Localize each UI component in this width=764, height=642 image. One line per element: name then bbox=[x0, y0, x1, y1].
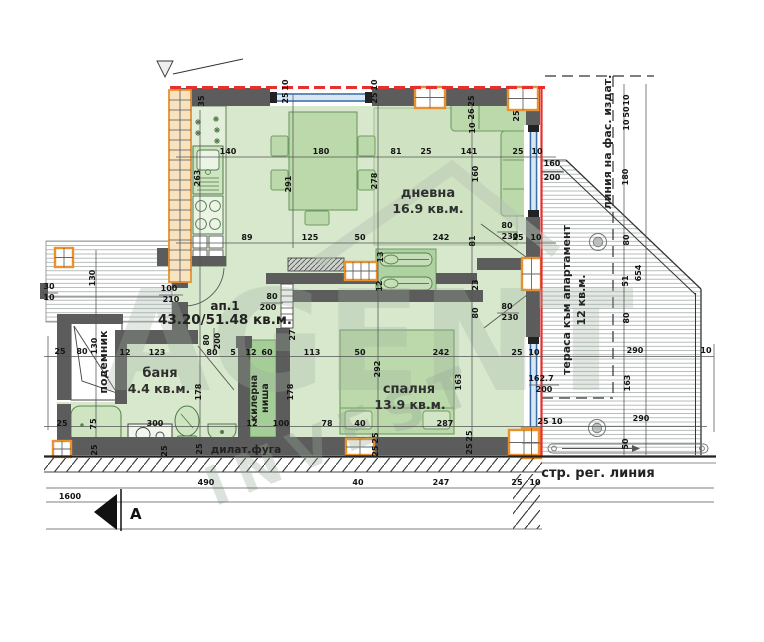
dimension-label: 10 bbox=[622, 94, 631, 106]
dimension-label: 25 bbox=[195, 443, 204, 455]
dimension-label: 287 bbox=[437, 419, 454, 428]
dimension-label: 25 bbox=[465, 430, 474, 442]
dimension-label: 10 bbox=[468, 122, 477, 134]
dimension-label: 10 bbox=[43, 293, 55, 302]
dimension-label: 81 bbox=[390, 147, 402, 156]
terrace-label: тераса към апартамент bbox=[560, 224, 573, 375]
dimension-label: 80 bbox=[622, 312, 631, 324]
dimension-label: 160 bbox=[544, 159, 561, 168]
dimension-label: 40 bbox=[352, 478, 364, 487]
dimension-label: 10 bbox=[370, 79, 379, 91]
dimension-label: 100 bbox=[273, 419, 290, 428]
dimension-label: 13 bbox=[376, 251, 385, 262]
apartment-id: ап.1 bbox=[210, 299, 239, 313]
dimension-label: 25 bbox=[420, 147, 432, 156]
dimension-label: 178 bbox=[286, 383, 295, 400]
dimension-label: 178 bbox=[194, 383, 203, 400]
dimension-label: 25 bbox=[281, 92, 290, 104]
dimension-label: 60 bbox=[261, 348, 273, 357]
balcony-door-living bbox=[524, 125, 542, 217]
dimension-label: 278 bbox=[370, 172, 379, 189]
dimension-label: 25 bbox=[511, 348, 523, 357]
apartment-area: 43.20/51.48 кв.м. bbox=[158, 312, 292, 328]
dimension-label: 25 bbox=[465, 443, 474, 455]
dimension-label: 40 bbox=[354, 419, 366, 428]
dimension-label: 25 bbox=[512, 110, 521, 122]
dimension-label: 10 bbox=[551, 417, 563, 426]
regulation-line-label: стр. рег. линия bbox=[541, 466, 654, 481]
dimension-label: 10 bbox=[530, 233, 542, 242]
dimension-label: 25 bbox=[370, 92, 379, 104]
dimension-label: 242 bbox=[433, 348, 450, 357]
dimension-label: 25 bbox=[54, 347, 66, 356]
dilatation-joint-label: дилат.фуга bbox=[211, 444, 282, 456]
dimension-label: 123 bbox=[149, 348, 166, 357]
section-marker: А bbox=[94, 489, 142, 531]
living-room-area: 16.9 кв.м. bbox=[392, 201, 463, 216]
dimension-label: 12 bbox=[245, 348, 256, 357]
dimension-label: 180 bbox=[621, 168, 630, 185]
dimension-label: 263 bbox=[193, 170, 202, 187]
dimension-label: 291 bbox=[284, 175, 293, 192]
dimension-label: 25 bbox=[537, 417, 549, 426]
dimension-label: 10 bbox=[529, 478, 541, 487]
bedroom-label: спалня bbox=[383, 382, 435, 397]
dimension-label: 26 bbox=[467, 108, 476, 120]
dimension-label: 25 bbox=[512, 147, 524, 156]
dimension-label: 81 bbox=[468, 235, 477, 247]
dimension-label: 200 bbox=[536, 385, 553, 394]
dimension-label: 163 bbox=[454, 374, 463, 391]
dimension-label: 50 bbox=[354, 348, 366, 357]
dimension-label: 25 bbox=[371, 432, 380, 444]
dimension-label: 10 bbox=[622, 119, 631, 131]
bathroom-area: 4.4 кв.м. bbox=[128, 381, 191, 396]
pantry-label-1: килерна bbox=[249, 375, 260, 421]
dimension-label: 50 bbox=[622, 106, 631, 118]
dimension-label: 25 bbox=[56, 419, 68, 428]
dimension-label: 141 bbox=[461, 147, 478, 156]
corner-marker bbox=[157, 59, 243, 77]
dimension-label: 25 bbox=[511, 478, 523, 487]
staircase bbox=[169, 90, 191, 282]
dimension-label: 25 bbox=[371, 445, 380, 457]
dimension-label: 292 bbox=[373, 361, 382, 378]
dimension-label: 113 bbox=[304, 348, 321, 357]
bathroom-label: баня bbox=[142, 366, 177, 381]
dimension-label: 35 bbox=[197, 95, 206, 107]
dimension-label: 5 bbox=[230, 348, 236, 357]
dimension-label: 78 bbox=[321, 419, 333, 428]
dimension-label: 242 bbox=[433, 233, 450, 242]
dimension-label: 210 bbox=[163, 295, 180, 304]
dimension-label: 23 bbox=[471, 279, 480, 290]
pantry-label-2: ниша bbox=[260, 383, 271, 413]
dimension-label: 290 bbox=[633, 414, 650, 423]
dimension-label: 200 bbox=[260, 303, 277, 312]
dimension-label: 80 bbox=[501, 221, 513, 230]
dimension-label: 80 bbox=[622, 234, 631, 246]
bedroom-area: 13.9 кв.м. bbox=[374, 397, 445, 412]
dimension-label: 50 bbox=[354, 233, 366, 242]
dimension-label: 80 bbox=[76, 347, 88, 356]
dimension-label: 51 bbox=[621, 275, 630, 287]
dimension-label: 10 bbox=[531, 147, 543, 156]
floor-plan-drawing: AGENT INVEST 352510251025261025140180812… bbox=[0, 0, 764, 642]
dimension-label: 230 bbox=[502, 313, 519, 322]
dimension-label: 80 bbox=[206, 348, 218, 357]
dimension-label: 80 bbox=[202, 334, 211, 346]
dimension-label: 89 bbox=[241, 233, 253, 242]
dimension-label: 10 bbox=[528, 348, 540, 357]
living-room-label: дневна bbox=[401, 186, 455, 201]
dimension-label: 300 bbox=[147, 419, 164, 428]
dimension-label: 80 bbox=[471, 307, 480, 319]
dimension-label: 162.7 bbox=[528, 374, 553, 383]
dimension-label: 654 bbox=[634, 264, 643, 281]
dimension-label: 125 bbox=[302, 233, 319, 242]
dimension-label: 80 bbox=[501, 302, 513, 311]
dimension-label: 200 bbox=[544, 173, 561, 182]
dimension-label: 12 bbox=[119, 348, 130, 357]
dimension-label: 10 bbox=[700, 346, 712, 355]
dimension-label: 50 bbox=[621, 438, 630, 450]
dimension-label: 25 bbox=[467, 95, 476, 107]
dimension-label: 30 bbox=[43, 282, 55, 291]
dimension-label: 180 bbox=[313, 147, 330, 156]
dimension-label: 200 bbox=[213, 332, 222, 349]
dimension-label: 25 bbox=[90, 444, 99, 456]
dimension-label: 230 bbox=[502, 232, 519, 241]
stove bbox=[193, 196, 223, 234]
dimension-label: 75 bbox=[89, 418, 98, 430]
dimension-label: 163 bbox=[623, 375, 632, 392]
dimension-label: 1600 bbox=[59, 492, 82, 501]
dimension-label: 100 bbox=[161, 284, 178, 293]
dimension-label: 10 bbox=[281, 79, 290, 91]
dimension-label: 27 bbox=[288, 329, 297, 340]
section-letter: А bbox=[130, 505, 142, 523]
terrace-area: 12 кв.м. bbox=[575, 275, 588, 326]
dimension-label: 290 bbox=[627, 346, 644, 355]
lift-label: подемник bbox=[97, 330, 110, 394]
facade-line-label: линия на фас. издат. bbox=[601, 75, 614, 210]
dimension-label: 247 bbox=[433, 478, 450, 487]
dimension-label: 12 bbox=[375, 280, 384, 291]
dimension-label: 25 bbox=[160, 445, 169, 457]
dimension-label: 130 bbox=[88, 269, 97, 286]
dimension-label: 160 bbox=[471, 165, 480, 182]
dimension-label: 80 bbox=[266, 292, 278, 301]
floor-plan-page: AGENT INVEST 352510251025261025140180812… bbox=[0, 0, 764, 642]
dimension-label: 140 bbox=[220, 147, 237, 156]
dimension-label: 490 bbox=[198, 478, 215, 487]
